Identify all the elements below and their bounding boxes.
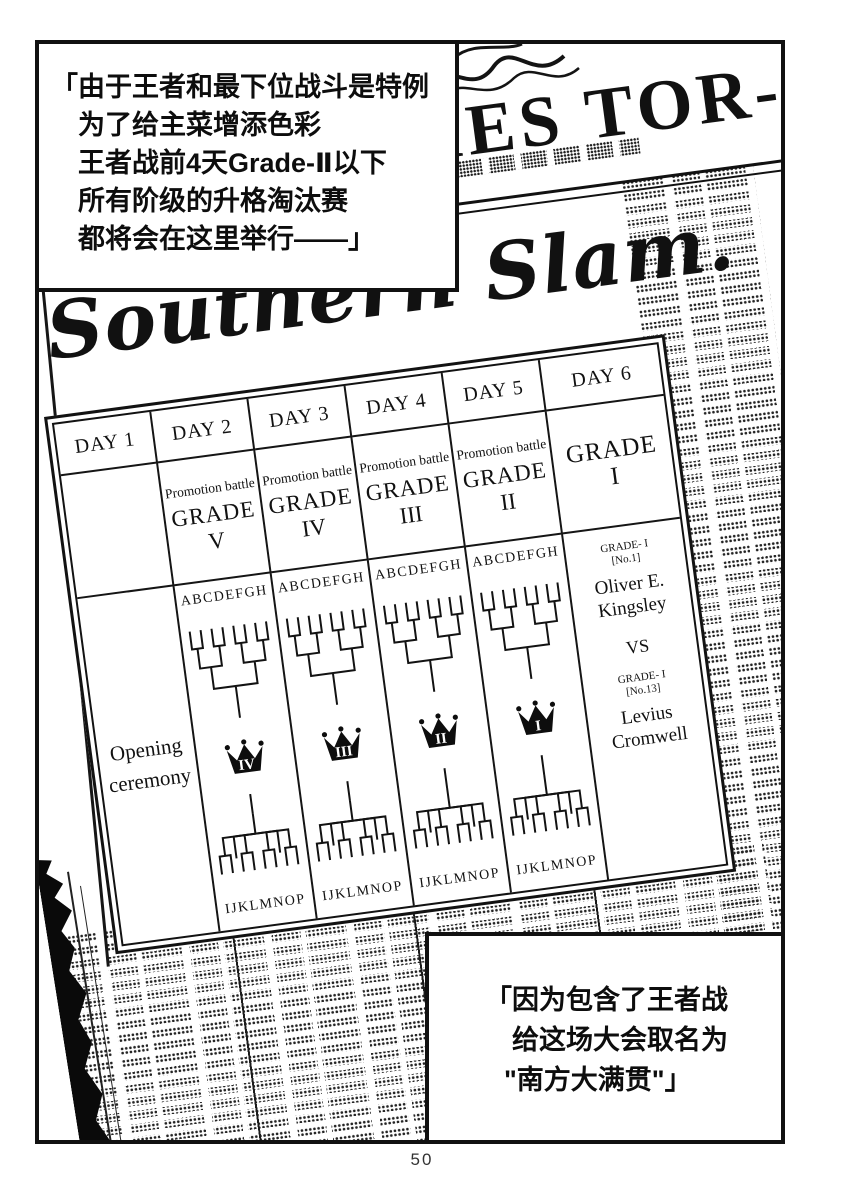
winner-crown-icon: II — [415, 708, 466, 754]
vs-label: VS — [625, 635, 651, 659]
winner-crown-icon: IV — [220, 734, 271, 780]
winner-crown-icon: III — [317, 721, 368, 767]
dialogue-line: 都将会在这里举行——」 — [51, 220, 449, 258]
newspaper-panel: MES TOR-CAN Southern Slam. DAY 1 DAY 2 D… — [35, 40, 785, 1144]
manga-page: MES TOR-CAN Southern Slam. DAY 1 DAY 2 D… — [0, 0, 844, 1200]
day2-grade-cell: Promotion battle GRADE V — [158, 450, 272, 586]
day3-grade-cell: Promotion battle GRADE IV — [255, 437, 369, 573]
day4-grade-cell: Promotion battle GRADE III — [352, 424, 466, 560]
grade-numeral: II — [499, 487, 518, 517]
fighter1-name: Oliver E. Kingsley — [593, 569, 668, 624]
grade-numeral: III — [398, 499, 424, 530]
bracket-top-icon — [476, 580, 576, 687]
day6-grade-cell: GRADE I — [547, 396, 680, 535]
bracket-top-icon — [184, 618, 284, 725]
bracket-bottom-letters: IJKLMNOP — [516, 853, 599, 880]
bracket-bottom-letters: IJKLMNOP — [321, 879, 404, 906]
winner-crown-icon: I — [512, 695, 563, 741]
grade-numeral: IV — [300, 512, 328, 543]
dialogue-line: "南方大满贯"」 — [485, 1060, 785, 1100]
dialogue-line: 给这场大会取名为 — [485, 1020, 785, 1060]
bracket-bottom-icon — [401, 762, 499, 857]
crown-numeral: IV — [237, 756, 256, 774]
dialogue-line: 「由于王者和最下位战斗是特例 — [51, 68, 449, 106]
grade-numeral: I — [609, 463, 621, 492]
bracket-top-letters: ABCDEFGH — [471, 544, 560, 571]
day1-grade-cell — [61, 463, 175, 599]
dialogue-line: 「因为包含了王者战 — [485, 980, 785, 1020]
bracket-bottom-icon — [207, 788, 305, 883]
bracket-bottom-icon — [304, 775, 402, 870]
fighter2-name: Levius Cromwell — [608, 699, 689, 755]
page-number: 50 — [0, 1150, 844, 1170]
bracket-top-letters: ABCDEFGH — [180, 583, 269, 610]
crown-numeral: III — [334, 743, 354, 761]
dialogue-bubble-top: 「由于王者和最下位战斗是特例 为了给主菜增添色彩 王者战前4天Grade-Ⅱ以下… — [35, 40, 459, 292]
bracket-top-icon — [379, 592, 479, 699]
fighter1-rank: [No.1] — [611, 551, 641, 568]
grade-numeral: V — [207, 526, 227, 556]
bracket-bottom-letters: IJKLMNOP — [224, 892, 307, 919]
dialogue-line: 为了给主菜增添色彩 — [51, 106, 449, 144]
bracket-bottom-icon — [499, 750, 597, 845]
bracket-bottom-letters: IJKLMNOP — [418, 866, 501, 893]
dialogue-line: 所有阶级的升格淘汰赛 — [51, 182, 449, 220]
bracket-top-icon — [282, 605, 382, 712]
day5-grade-cell: Promotion battle GRADE II — [450, 411, 564, 547]
dialogue-line: 王者战前4天Grade-Ⅱ以下 — [51, 144, 449, 182]
crown-numeral: II — [434, 730, 448, 747]
bracket-top-letters: ABCDEFGH — [374, 557, 463, 584]
bracket-top-letters: ABCDEFGH — [277, 570, 366, 597]
dialogue-bubble-bottom: 「因为包含了王者战 给这场大会取名为 "南方大满贯"」 — [425, 932, 785, 1144]
schedule-table: DAY 1 DAY 2 DAY 3 DAY 4 DAY 5 DAY 6 Prom… — [44, 334, 736, 954]
